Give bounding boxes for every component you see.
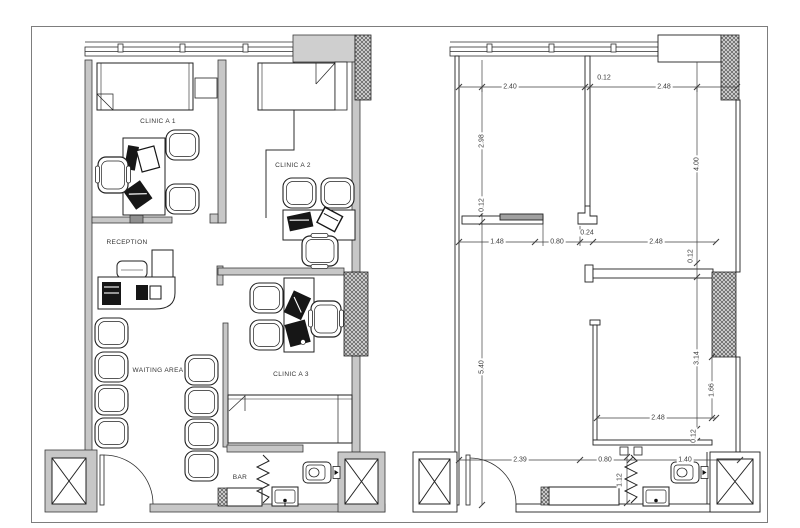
- shaft-box-bottom-right: [345, 459, 378, 504]
- room-label-clinic-a3: CLINIC A 3: [273, 372, 309, 379]
- dim-bottom-a: 2.39: [512, 457, 529, 464]
- hatch-column-top-right: [355, 35, 371, 100]
- dim-right-lower: 1.66: [709, 382, 716, 399]
- dim-left-upper: 2.98: [479, 133, 486, 150]
- bed-clinic-a2: [258, 62, 347, 110]
- bar-counter: [541, 487, 619, 505]
- dim-right-upper: 4.00: [694, 156, 701, 173]
- guest-chair: [166, 184, 199, 214]
- dim-room-width: 2.48: [650, 415, 667, 422]
- floorplan-sheet: CLINIC A 1 CLINIC A 2 RECEPTION WAITING …: [0, 0, 800, 528]
- dim-mid-wall: 0.24: [579, 230, 596, 237]
- dimensioned-plan-drawing: [405, 30, 790, 518]
- room-label-waiting-area: WAITING AREA: [133, 368, 184, 375]
- sink-icon: [272, 487, 298, 507]
- room-label-clinic-a2: CLINIC A 2: [275, 163, 311, 170]
- bar-counter: [218, 488, 262, 506]
- room-label-clinic-a1: CLINIC A 1: [140, 119, 176, 126]
- window-band: [85, 42, 293, 56]
- guest-chair: [321, 178, 354, 208]
- bed-clinic-a1: [97, 63, 217, 110]
- dim-right-mid: 3.14: [694, 350, 701, 367]
- dim-mid-a: 1.48: [489, 239, 506, 246]
- dim-bath-depth: 1.12: [617, 472, 624, 489]
- exec-chair-clinic-a1: [96, 157, 131, 193]
- guest-chair: [283, 178, 316, 208]
- furnished-plan-drawing: [40, 30, 390, 518]
- waiting-area-chairs: [95, 318, 218, 481]
- sink-icon: [643, 487, 669, 506]
- exec-chair-clinic-a3: [309, 301, 344, 337]
- bed-clinic-a3: [228, 395, 352, 443]
- hatch-column-top-right: [721, 35, 739, 100]
- exec-chair-clinic-a2: [302, 234, 338, 269]
- dim-mid-c: 2.48: [648, 239, 665, 246]
- entrance-door-arc: [100, 455, 153, 505]
- shaft-box-bottom-left: [419, 459, 450, 504]
- dim-bottom-c: 1.40: [677, 457, 694, 464]
- dim-bottom-b: 0.80: [597, 457, 614, 464]
- dim-left-wall: 0.12: [479, 197, 486, 214]
- dim-top-width-right: 2.48: [656, 84, 673, 91]
- room-label-reception: RECEPTION: [106, 240, 147, 247]
- shaft-box-bottom-right: [717, 459, 753, 504]
- hatch-column-mid-right: [344, 272, 368, 356]
- dim-right-wall-lower: 0.12: [691, 428, 698, 445]
- reception-desk: [98, 250, 175, 309]
- toilet-icon: [671, 462, 708, 483]
- guest-chair: [250, 283, 283, 313]
- shaft-box-bottom-left: [52, 458, 86, 504]
- window-band: [450, 42, 658, 56]
- toilet-icon: [303, 462, 340, 483]
- dim-top-width-left: 2.40: [502, 84, 519, 91]
- guest-chair: [250, 320, 283, 350]
- dim-left-lower: 5.40: [479, 359, 486, 376]
- guest-chair: [166, 130, 199, 160]
- hatch-column-mid-right: [712, 272, 736, 357]
- walls: [413, 35, 760, 512]
- dim-right-wall-upper: 0.12: [688, 248, 695, 265]
- dim-mid-b: 0.80: [549, 239, 566, 246]
- dim-top-wall: 0.12: [596, 75, 613, 82]
- entrance-door-arc: [466, 455, 516, 505]
- room-label-bar: BAR: [233, 475, 247, 482]
